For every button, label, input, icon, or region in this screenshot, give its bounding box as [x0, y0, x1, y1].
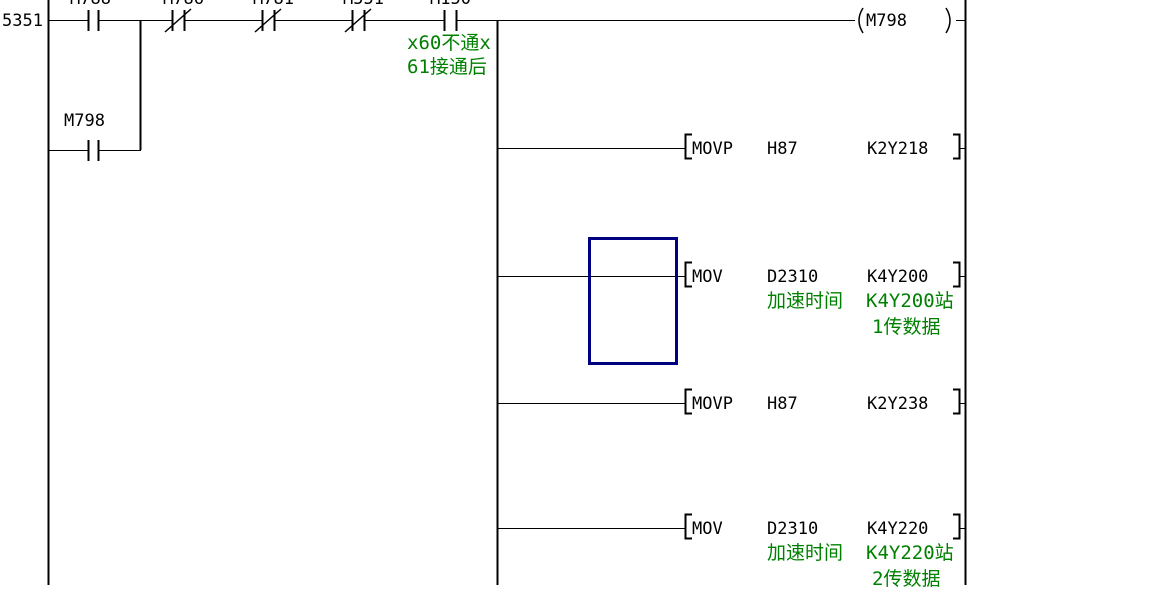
- rung-comment-line1: x60不通x: [407, 32, 491, 54]
- instruction-operand1[interactable]: D2310: [767, 519, 818, 539]
- instruction-opcode[interactable]: MOVP: [692, 394, 733, 414]
- contact-label-1: M788: [70, 0, 111, 9]
- instruction-operand2[interactable]: K2Y218: [867, 139, 928, 159]
- instruction-opcode[interactable]: MOV: [692, 267, 723, 287]
- operand-comment: K4Y220站: [866, 542, 954, 564]
- branch-contact-label: M798: [64, 111, 105, 131]
- instruction-row-4[interactable]: MOV D2310 K4Y220: [0, 519, 1151, 539]
- ladder-editor-canvas: 5351 M788 M786 M781 M551 M150 x60不通x 61接…: [0, 0, 1151, 613]
- selection-cursor[interactable]: [588, 237, 678, 365]
- instruction-operand2[interactable]: K4Y200: [867, 267, 928, 287]
- instruction-row-1[interactable]: MOVP H87 K2Y218: [0, 139, 1151, 159]
- contact-symbol-no-5[interactable]: [445, 10, 457, 31]
- instruction-operand1[interactable]: H87: [767, 394, 798, 414]
- operand-comment: K4Y200站: [866, 290, 954, 312]
- instruction-opcode[interactable]: MOV: [692, 519, 723, 539]
- rung-comment-line2: 61接通后: [407, 56, 487, 78]
- contact-label-5: M150: [430, 0, 471, 9]
- contact-label-3: M781: [253, 0, 294, 9]
- instruction-row-2[interactable]: MOV D2310 K4Y200: [0, 267, 1151, 287]
- rung-step-number: 5351: [2, 11, 43, 31]
- instruction-operand1[interactable]: H87: [767, 139, 798, 159]
- contact-symbol-no-1[interactable]: [89, 10, 99, 31]
- operand-comment: 2传数据: [872, 568, 940, 590]
- instruction-operand2[interactable]: K4Y220: [867, 519, 928, 539]
- operand-comment: 1传数据: [872, 316, 940, 338]
- operand-comment: 加速时间: [767, 542, 843, 564]
- instruction-row-3[interactable]: MOVP H87 K2Y238: [0, 394, 1151, 414]
- coil-device-label: M798: [866, 11, 907, 31]
- instruction-opcode[interactable]: MOVP: [692, 139, 733, 159]
- contact-label-2: M786: [163, 0, 204, 9]
- instruction-operand2[interactable]: K2Y238: [867, 394, 928, 414]
- operand-comment: 加速时间: [767, 290, 843, 312]
- instruction-operand1[interactable]: D2310: [767, 267, 818, 287]
- contact-label-4: M551: [343, 0, 384, 9]
